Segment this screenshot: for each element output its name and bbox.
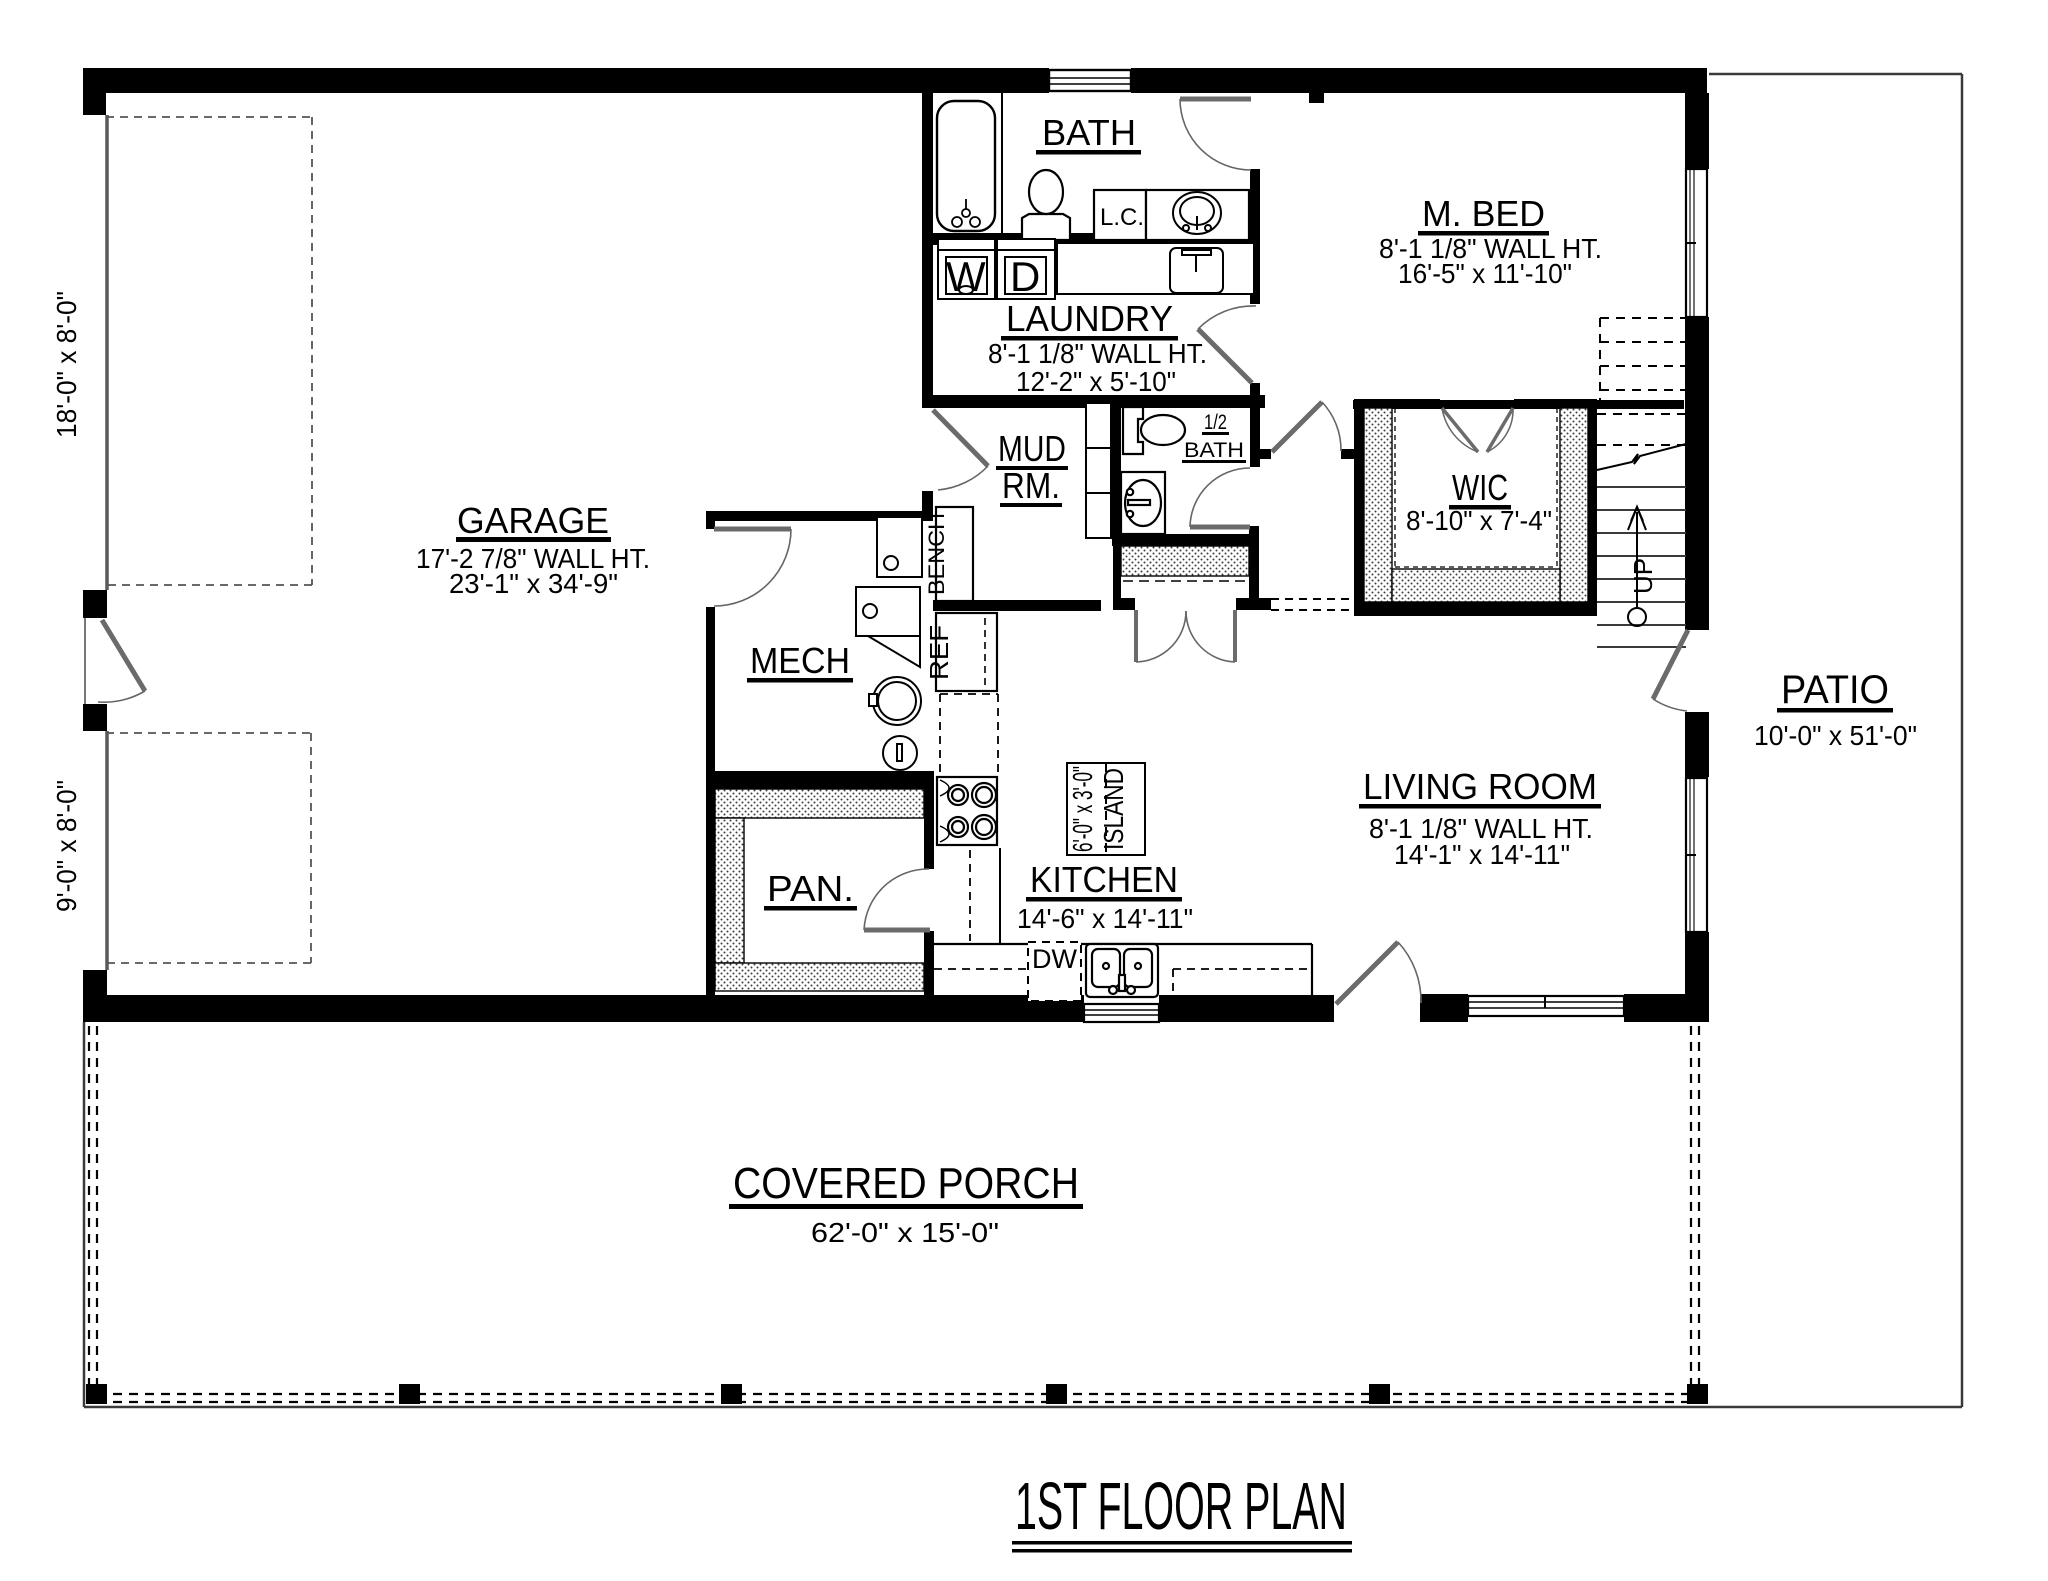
svg-text:COVERED PORCH: COVERED PORCH: [733, 1159, 1079, 1208]
svg-text:BENCH: BENCH: [924, 513, 949, 595]
svg-text:W: W: [946, 253, 986, 300]
svg-text:REF: REF: [924, 625, 954, 680]
svg-text:D: D: [1010, 253, 1040, 300]
svg-text:6'-0" x 3'-0": 6'-0" x 3'-0": [1067, 766, 1098, 852]
svg-text:M. BED: M. BED: [1422, 193, 1545, 234]
svg-text:12'-2" x 5'-10": 12'-2" x 5'-10": [1016, 366, 1176, 397]
svg-text:L.C.: L.C.: [1100, 204, 1144, 231]
svg-text:PATIO: PATIO: [1781, 668, 1889, 712]
svg-text:KITCHEN: KITCHEN: [1030, 859, 1178, 900]
svg-text:LAUNDRY: LAUNDRY: [1006, 298, 1173, 339]
svg-text:62'-0" x 15'-0": 62'-0" x 15'-0": [811, 1217, 999, 1248]
svg-text:RM.: RM.: [1002, 465, 1060, 506]
svg-text:14'-6" x 14'-11": 14'-6" x 14'-11": [1017, 903, 1193, 934]
svg-text:8'-1 1/8" WALL HT.: 8'-1 1/8" WALL HT.: [988, 338, 1207, 369]
svg-text:DW: DW: [1032, 944, 1077, 974]
svg-text:18'-0" x 8'-0": 18'-0" x 8'-0": [51, 291, 82, 438]
svg-text:GARAGE: GARAGE: [457, 500, 609, 541]
svg-text:BATH: BATH: [1042, 112, 1136, 153]
svg-text:UP: UP: [1628, 558, 1658, 594]
svg-text:23'-1" x 34'-9": 23'-1" x 34'-9": [449, 568, 618, 599]
svg-text:MECH: MECH: [750, 640, 850, 681]
svg-text:1/2: 1/2: [1204, 411, 1227, 434]
svg-text:LIVING ROOM: LIVING ROOM: [1363, 766, 1597, 807]
svg-text:BATH: BATH: [1184, 439, 1244, 462]
svg-text:1ST FLOOR PLAN: 1ST FLOOR PLAN: [1015, 1469, 1347, 1544]
svg-text:WIC: WIC: [1452, 467, 1508, 508]
svg-text:8'-10" x 7'-4": 8'-10" x 7'-4": [1406, 505, 1552, 536]
svg-text:14'-1" x 14'-11": 14'-1" x 14'-11": [1394, 839, 1570, 870]
svg-text:ISLAND: ISLAND: [1098, 768, 1129, 850]
svg-text:MUD: MUD: [998, 428, 1066, 469]
svg-text:10'-0" x 51'-0": 10'-0" x 51'-0": [1754, 720, 1917, 751]
svg-text:PAN.: PAN.: [767, 868, 854, 909]
svg-text:16'-5" x 11'-10": 16'-5" x 11'-10": [1398, 258, 1572, 289]
svg-text:9'-0" x 8'-0": 9'-0" x 8'-0": [51, 780, 82, 912]
